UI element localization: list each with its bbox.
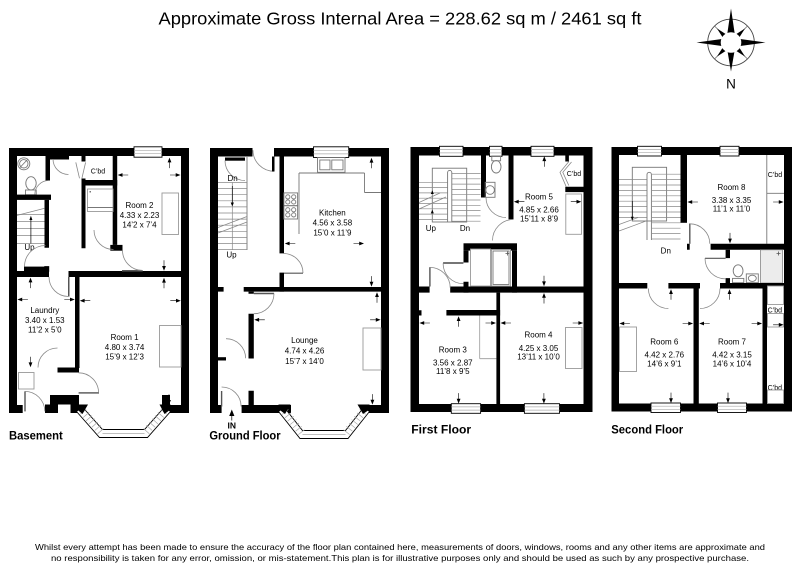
svg-text:C’bd: C’bd <box>91 169 106 176</box>
svg-text:C’bd: C’bd <box>567 171 582 178</box>
svg-text:Up: Up <box>24 243 35 252</box>
svg-text:Second Floor: Second Floor <box>611 425 683 437</box>
svg-text:Dn: Dn <box>661 247 671 256</box>
svg-text:Up: Up <box>426 224 437 233</box>
svg-text:First Floor: First Floor <box>411 425 471 437</box>
svg-text:Laundry3.40 x 1.5311’2 x 5’0: Laundry3.40 x 1.5311’2 x 5’0 <box>25 306 65 334</box>
svg-text:C’bd: C’bd <box>768 172 783 179</box>
svg-text:Basement: Basement <box>9 430 63 442</box>
svg-text:Approximate Gross Internal Are: Approximate Gross Internal Area = 228.62… <box>159 9 642 29</box>
svg-text:Ground Floor: Ground Floor <box>209 431 281 443</box>
svg-text:no responsibility is taken for: no responsibility is taken for any error… <box>51 553 749 563</box>
svg-text:Dn: Dn <box>227 174 237 183</box>
svg-text:Whilst every attempt has been: Whilst every attempt has been made to en… <box>35 542 765 552</box>
svg-text:Dn: Dn <box>460 224 470 233</box>
svg-text:N: N <box>726 77 736 92</box>
svg-text:Up: Up <box>226 251 237 260</box>
svg-text:IN: IN <box>228 420 237 430</box>
